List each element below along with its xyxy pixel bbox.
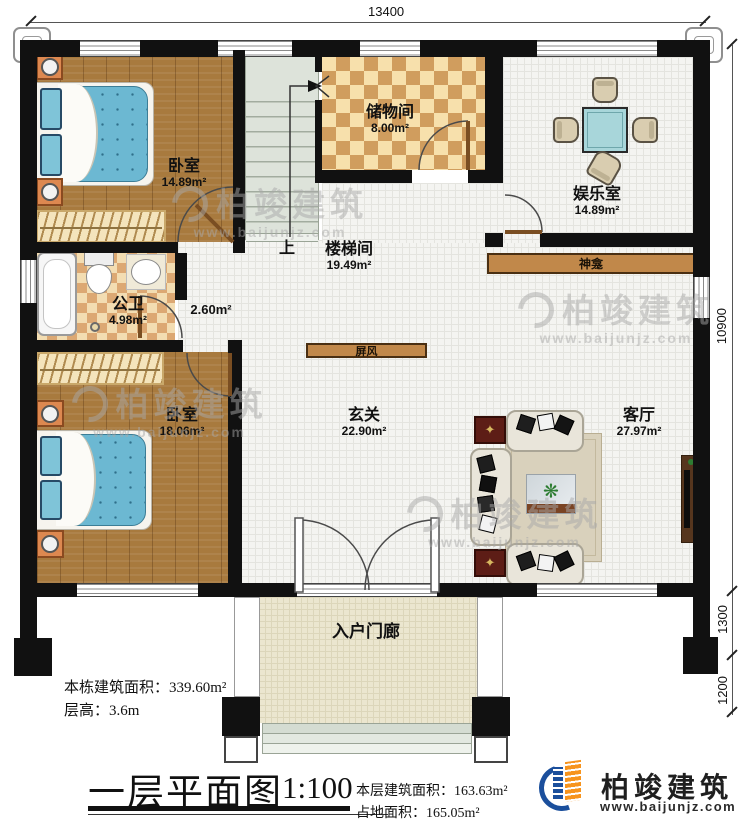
entry-threshold bbox=[297, 583, 437, 597]
floor-height: 层高：3.6m bbox=[64, 699, 139, 720]
wall bbox=[228, 340, 242, 583]
tv-icon bbox=[684, 470, 690, 528]
staircase bbox=[245, 43, 319, 240]
chair bbox=[553, 117, 579, 143]
window bbox=[537, 583, 657, 597]
right-dimension-label: 1200 bbox=[715, 676, 730, 705]
building-total-area: 本栋建筑面积：339.60m² bbox=[64, 676, 226, 697]
hallway-area-label: 2.60m² bbox=[190, 303, 231, 318]
bed-pillow bbox=[40, 480, 62, 520]
stairs-up-label: 上 bbox=[279, 240, 295, 258]
wall bbox=[437, 583, 537, 597]
room-label-bedroom1: 卧室 14.89m² bbox=[162, 158, 207, 190]
room-label-living: 客厅 27.97m² bbox=[617, 407, 662, 439]
window bbox=[77, 583, 198, 597]
wall bbox=[657, 583, 710, 597]
shrine-shelf: 神龛 bbox=[487, 253, 695, 274]
wardrobe bbox=[36, 352, 164, 385]
wardrobe bbox=[36, 210, 166, 243]
nightstand bbox=[36, 400, 64, 427]
wall bbox=[20, 340, 183, 352]
nightstand bbox=[36, 530, 64, 558]
bathtub bbox=[37, 252, 77, 336]
right-dimension-label: 1300 bbox=[715, 605, 730, 634]
game-table bbox=[582, 107, 628, 153]
window bbox=[360, 40, 420, 57]
wall bbox=[233, 50, 245, 253]
wall bbox=[140, 40, 218, 57]
bed-pillow bbox=[40, 134, 62, 176]
window bbox=[693, 277, 710, 318]
room-label-porch: 入户门廊 bbox=[332, 622, 400, 642]
top-dimension-line bbox=[30, 22, 706, 23]
pillar-base bbox=[474, 736, 508, 763]
room-label-bathroom: 公卫 4.98m² bbox=[109, 296, 147, 328]
column bbox=[683, 637, 718, 674]
wall bbox=[485, 233, 503, 247]
title-underline-thick bbox=[88, 806, 350, 811]
dimension-tick bbox=[25, 15, 36, 26]
wall bbox=[315, 57, 322, 72]
entry-porch-floor bbox=[247, 597, 487, 723]
sink bbox=[126, 254, 166, 290]
porch-pillar-shaft bbox=[477, 597, 503, 697]
side-table: ✦ bbox=[474, 549, 506, 577]
window bbox=[218, 40, 292, 57]
sofa-pillow bbox=[477, 495, 495, 513]
wall bbox=[175, 253, 187, 300]
porch-step bbox=[262, 743, 472, 754]
room-label-stairwell: 楼梯间 19.49m² bbox=[325, 241, 373, 273]
bed-pillow bbox=[40, 88, 62, 130]
sofa-pillow bbox=[479, 475, 498, 494]
brand-logo-icon bbox=[537, 757, 595, 815]
wall bbox=[420, 40, 537, 57]
nightstand bbox=[36, 178, 63, 206]
nightstand bbox=[36, 54, 63, 80]
porch-pillar-shaft bbox=[234, 597, 260, 697]
column bbox=[14, 638, 52, 676]
bed-pillow bbox=[40, 436, 62, 476]
room-label-bedroom2: 卧室 18.06m² bbox=[160, 407, 205, 439]
porch-pillar bbox=[222, 697, 260, 736]
chair bbox=[632, 117, 658, 143]
window bbox=[80, 40, 140, 57]
porch-pillar bbox=[472, 697, 510, 736]
floor-plan: 13400 10900 1300 1200 bbox=[0, 0, 750, 836]
footprint-area: 占地面积：165.05m² bbox=[356, 802, 480, 822]
window bbox=[537, 40, 657, 57]
screen-partition: 屏风 bbox=[306, 343, 427, 358]
right-dimension-line bbox=[732, 45, 733, 715]
top-dimension-label: 13400 bbox=[368, 4, 404, 19]
wall bbox=[28, 242, 178, 253]
wall bbox=[198, 583, 297, 597]
coffee-table: ❋ bbox=[526, 474, 576, 514]
room-label-storage: 储物间 8.00m² bbox=[366, 104, 414, 136]
side-table: ✦ bbox=[474, 416, 506, 444]
plant-icon: ❋ bbox=[543, 483, 559, 502]
stair-treads bbox=[246, 101, 318, 233]
window bbox=[20, 260, 37, 303]
title-underline-thin bbox=[88, 814, 388, 815]
drawing-scale: 1:100 bbox=[282, 770, 353, 806]
wall bbox=[28, 583, 77, 597]
room-label-foyer: 玄关 22.90m² bbox=[342, 407, 387, 439]
wall bbox=[315, 170, 412, 183]
wall bbox=[292, 40, 360, 57]
right-dimension-label: 10900 bbox=[714, 308, 729, 344]
floor-drain bbox=[90, 322, 100, 332]
wall bbox=[693, 40, 710, 277]
room-label-entertainment: 娱乐室 14.89m² bbox=[573, 186, 621, 218]
dimension-tick bbox=[699, 15, 710, 26]
wall bbox=[540, 233, 693, 247]
wall bbox=[485, 40, 503, 183]
hallway-floor bbox=[178, 247, 245, 347]
wall bbox=[20, 40, 37, 260]
chair bbox=[592, 77, 618, 103]
pillar-base bbox=[224, 736, 258, 763]
floor-area: 本层建筑面积：163.63m² bbox=[356, 780, 508, 800]
brand-url: www.baijunjz.com bbox=[600, 799, 736, 814]
